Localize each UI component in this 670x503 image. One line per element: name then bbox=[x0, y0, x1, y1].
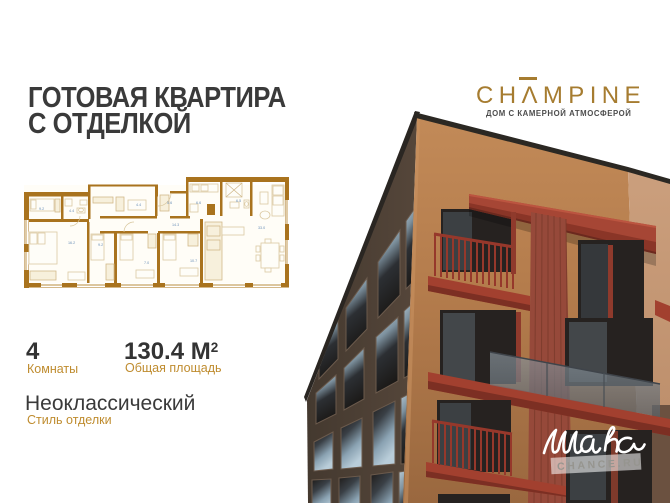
svg-text:7.0: 7.0 bbox=[144, 261, 149, 265]
svg-text:5.6: 5.6 bbox=[167, 201, 172, 205]
svg-text:6.5: 6.5 bbox=[236, 199, 241, 203]
svg-text:16.2: 16.2 bbox=[68, 241, 75, 245]
svg-text:14.3: 14.3 bbox=[172, 223, 179, 227]
svg-text:6.6: 6.6 bbox=[196, 201, 201, 205]
svg-text:4.4: 4.4 bbox=[69, 209, 74, 213]
svg-text:9.2: 9.2 bbox=[39, 207, 44, 211]
svg-text:10.7: 10.7 bbox=[190, 259, 197, 263]
svg-text:4.4: 4.4 bbox=[136, 203, 141, 207]
svg-text:33.0: 33.0 bbox=[258, 226, 265, 230]
svg-text:9.2: 9.2 bbox=[98, 243, 103, 247]
